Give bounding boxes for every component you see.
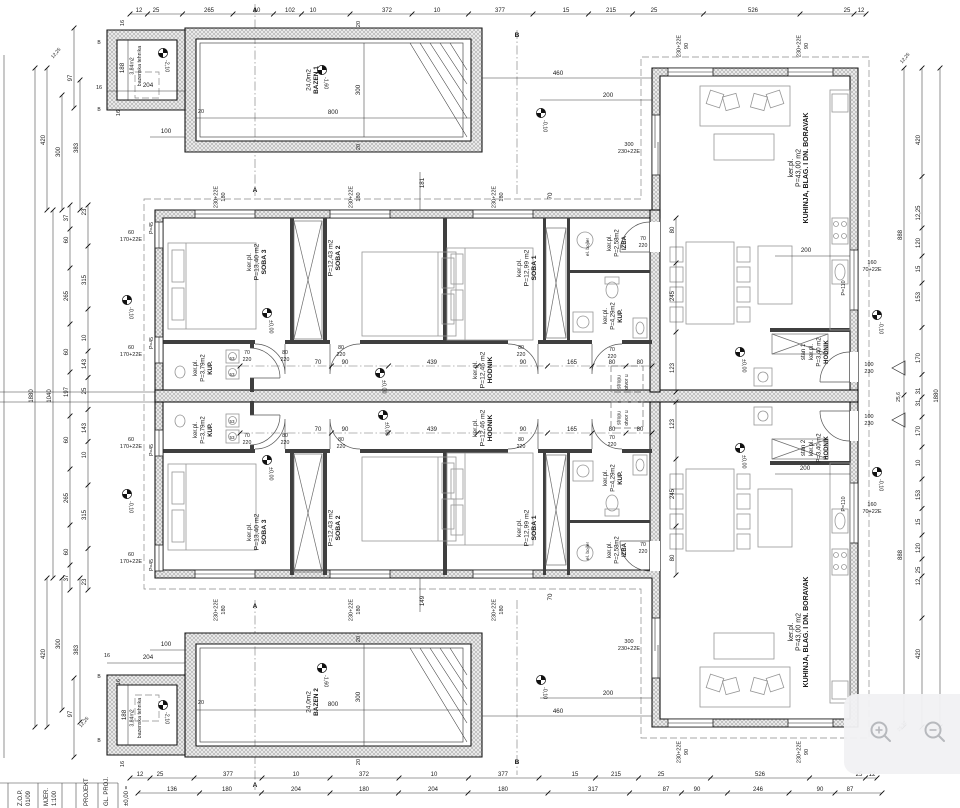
window-spec: 180230+22E [348, 186, 362, 209]
door_labels-label: 70220 [608, 347, 617, 360]
dim-value: 888 [898, 549, 904, 560]
pool_dims-label: 16 [120, 20, 126, 26]
window-spec: 180230+22E [491, 186, 505, 209]
dim-value: 143 [82, 358, 88, 369]
room-soba3-stan2: SOBA 3P=13,40 m2ker.pl. [246, 513, 268, 550]
dim-value: 215 [611, 772, 622, 778]
door_labels-label: 70220 [243, 433, 252, 446]
dim-value: 90 [520, 360, 527, 366]
dim-value: 204 [428, 787, 439, 793]
dim-value: 315 [82, 509, 88, 520]
dim-value: 10 [916, 459, 922, 466]
section-mark: A [253, 603, 258, 610]
room-living-stan1: KUHINJA, BLAG. I DN. BORAVAKP=43,00 m2ke… [788, 113, 810, 224]
dim-value: 170 [916, 425, 922, 436]
elevation-value: ±0,00 [268, 467, 274, 480]
pool-1 [185, 28, 482, 152]
dim-value: 1040 [47, 389, 53, 403]
terrace_dims-label: 181 [419, 177, 426, 188]
terrace_dims-label: 460 [553, 708, 564, 715]
elevation-value: -0,10 [542, 687, 548, 699]
title-cell: GL. PROJ. [104, 777, 110, 806]
elevation-value: -0,10 [542, 120, 548, 132]
bed [362, 252, 456, 336]
dim-value: 31 [916, 399, 922, 406]
el-bojler: el. bojler [585, 238, 591, 257]
door_labels-label: 70220 [639, 236, 648, 249]
window-spec: 16070+22E [862, 260, 881, 273]
dim-value: 87 [847, 787, 854, 793]
room-hodnik-stan2: HODNIKP=12,46 m2ker.pl. [472, 409, 494, 446]
title-cell: PROJEKT [84, 778, 90, 806]
terrace_dims-label: 200 [603, 92, 614, 99]
elevation-value: -1,60 [323, 675, 329, 687]
pool-bazen2: BAZEN 224,0m2 [305, 688, 320, 716]
pool_dims-label: 16 [120, 761, 126, 767]
elevation-value: -2,10 [164, 60, 170, 72]
dim-value: 12 [137, 772, 144, 778]
room-kup2-stan1: KUP.P=3,79m2ker.pl. [193, 354, 214, 382]
zoom-out-button[interactable] [919, 717, 953, 751]
elevation-marker: -0,10 [122, 489, 133, 513]
section-mark: B [515, 759, 520, 766]
door_labels-label: 80220 [281, 350, 290, 363]
dim-value: 420 [41, 134, 47, 145]
dim-value: 37 [64, 574, 70, 581]
misc-label: 12,25 [50, 47, 63, 60]
dim-value: 97 [68, 710, 74, 717]
room-kup-stan1: KUP.P=4,29m2ker.pl. [603, 302, 624, 330]
dim-300-bottom: 300 [56, 576, 65, 713]
room-izba-stan2: IZBAP=2,58m2ker.pl. [607, 536, 628, 564]
door_labels-label: 80220 [517, 437, 526, 450]
pool_dims-label: 20 [356, 759, 362, 765]
room-soba3-stan1: SOBA 3P=13,40 m2ker.pl. [246, 243, 268, 280]
title-cell: ±0,00 = [124, 785, 130, 806]
dim-value: 165 [567, 427, 578, 433]
terrace_dims-label: 70 [547, 593, 554, 600]
room-izba-stan1: IZBAP=2,58m2ker.pl. [607, 229, 628, 257]
dim-value: 180 [359, 787, 370, 793]
elevation-value: -2,10 [164, 712, 170, 724]
dim-value: 10 [431, 772, 438, 778]
otvor-u-stropu: otvor ustropu [616, 374, 630, 390]
pool-tech1: bazenska tehnika3,84m2 [129, 46, 143, 86]
parapet: P=45 [149, 337, 155, 349]
title-cell: 1:100 [52, 790, 58, 806]
elevation-value: ±0,00 [741, 359, 747, 372]
dim-value: 80 [670, 554, 676, 561]
dim-value: 60 [64, 348, 70, 355]
title-cell: Z.O.P. [18, 789, 24, 806]
dim-value: 120 [916, 237, 922, 248]
pool_dims-label: 800 [328, 701, 339, 708]
dim-chain-right-a: 42012,2512015153170313117010153151202512… [916, 66, 925, 730]
dim-value: 246 [753, 787, 764, 793]
dim-value: 377 [223, 772, 234, 778]
pool_dims-label: 16 [116, 110, 122, 116]
dim-value: 526 [755, 772, 766, 778]
terrace_dims-label: 200 [800, 465, 811, 472]
elevation-marker: ±0,00 [262, 308, 273, 333]
dim-value: 377 [498, 772, 509, 778]
dim-value: 12,25 [916, 205, 922, 221]
parapet: P=45 [149, 559, 155, 571]
dim-97-bottom: 97 [68, 676, 77, 760]
misc-label: 53 [229, 356, 235, 361]
misc-label: 53 [229, 435, 235, 440]
dim-97-top: 97 [68, 26, 77, 111]
section-mark: A [253, 782, 258, 789]
terrace_dims-label: 200 [801, 247, 812, 254]
dim-value: 143 [82, 422, 88, 433]
terrace_dims-label: 149 [419, 595, 426, 606]
title-cell: MJER. [44, 788, 50, 806]
dim-value: 31 [916, 387, 922, 394]
dim-chain-left-1040: 1040 [47, 208, 56, 581]
window-spec: 60170+22E [120, 552, 143, 565]
door-spec: 100230 [864, 362, 873, 375]
pool-bazen1: BAZEN 124,0m2 [305, 66, 320, 94]
dim-value: 25 [651, 8, 658, 14]
dim-value: 60 [64, 436, 70, 443]
dim-value: 420 [41, 648, 47, 659]
room-kup2-stan2: KUP.P=3,79m2ker.pl. [193, 416, 214, 444]
dim-value: 10 [82, 451, 88, 458]
window-spec: 300230+22E [618, 639, 641, 652]
pool_dims-label: 100 [161, 641, 172, 648]
pool_dims-label: 300 [355, 84, 362, 95]
dim-value: 300 [56, 146, 62, 157]
dim-value: 153 [916, 489, 922, 500]
dim-value: 120 [916, 542, 922, 553]
dim-420-top: 420 [41, 66, 50, 213]
pool_dims-label: 300 [355, 691, 362, 702]
sofa-group [700, 633, 790, 707]
elevation-marker: -0,10 [872, 467, 883, 491]
pool_dims-label: 204 [143, 654, 154, 661]
section-mark: B [97, 674, 101, 680]
dining-set [670, 469, 792, 551]
dim-value: 80 [637, 427, 644, 433]
dim-value: 420 [916, 648, 922, 659]
elevation-marker: -0,10 [536, 675, 547, 699]
dim-value: 245 [670, 290, 676, 301]
kitchen-counter [830, 90, 850, 330]
terrace_dims-label: 460 [553, 70, 564, 77]
dim-value: 888 [898, 229, 904, 240]
window-spec: 180230+22E [491, 599, 505, 622]
elevation-marker: ±0,00 [378, 410, 389, 435]
section-mark: B [97, 40, 101, 46]
pool_dims-label: 20 [198, 109, 204, 115]
window-spec: 90230+22E [676, 35, 690, 58]
pool_dims-label: 188 [119, 62, 126, 73]
party-wall [155, 390, 858, 402]
dim-value: 123 [670, 362, 676, 373]
dim-value: 37 [64, 214, 70, 221]
dim-value: 10 [82, 334, 88, 341]
parapet: P=45 [149, 222, 155, 234]
dim-value: 123 [670, 418, 676, 429]
elevation-marker: ±0,00 [262, 455, 273, 480]
section-mark: B [97, 738, 101, 744]
dim-value: 136 [167, 787, 178, 793]
dim-value: 25 [157, 772, 164, 778]
dim-value: 80 [670, 226, 676, 233]
pool_dims-label: 16 [96, 85, 102, 91]
dim-value: 25 [82, 387, 88, 394]
dim-chain-left-b: 376026560197602656037 [64, 203, 73, 593]
room-soba1-stan1: SOBA 1P=12,99 m2ker.pl. [516, 249, 538, 286]
dim-value: 25 [916, 566, 922, 573]
dim-value: 90 [342, 427, 349, 433]
terrace_dims-label: P=110 [841, 280, 847, 295]
window-spec: 180230+22E [348, 599, 362, 622]
dim-value: 245 [670, 488, 676, 499]
window-spec: 90230+22E [796, 35, 810, 58]
elevation-marker: -2,10 [158, 700, 169, 724]
dim-383-bottom: 383 [74, 576, 83, 725]
misc-label: 12,25 [899, 52, 912, 65]
dim-chain-bottom-2: 13618020418020418031787902469087 [136, 787, 885, 796]
pool-2 [185, 633, 482, 757]
viewer-zoom-panel [844, 694, 960, 774]
zoom-out-icon [923, 720, 949, 746]
pool_dims-label: 100 [161, 128, 172, 135]
window-spec: 60170+22E [120, 345, 143, 358]
floor-plan-page: 1225265101021037210377152152552625121225… [0, 0, 960, 808]
dim-value: 10 [293, 772, 300, 778]
dim-value: 15 [916, 518, 922, 525]
zoom-in-button[interactable] [865, 717, 899, 751]
pool_dims-label: 20 [356, 636, 362, 642]
terrace_dims-label: P=110 [841, 496, 847, 511]
pool-tech-room-2 [107, 675, 185, 755]
dim-chain-left-a: 2331510143251431031523 [82, 203, 91, 593]
dim-value: 377 [495, 8, 506, 14]
dim-value: 317 [588, 787, 599, 793]
dim-value: 15 [563, 8, 570, 14]
window-spec: 90230+22E [796, 741, 810, 764]
dim-value: 439 [427, 427, 438, 433]
dim-383-top: 383 [74, 78, 83, 213]
dim-value: 102 [285, 8, 296, 14]
door_labels-label: 70220 [608, 435, 617, 448]
dim-value: 526 [748, 8, 759, 14]
door_labels-label: 80220 [337, 345, 346, 358]
pool_dims-label: 16 [104, 653, 110, 659]
dim-value: 170 [916, 352, 922, 363]
dim-value: 90 [520, 427, 527, 433]
elevation-value: ±0,00 [381, 380, 387, 393]
elevation-value: ±0,00 [741, 455, 747, 468]
misc-label: 53 [229, 419, 235, 424]
sofa-group [700, 86, 790, 160]
bed [168, 464, 256, 550]
dim-value: 87 [663, 787, 670, 793]
window-spec: 60170+22E [120, 230, 143, 243]
dim-420-bottom: 420 [41, 576, 50, 730]
misc-label: 53 [229, 372, 235, 377]
pool-tech2: bazenska tehnika3,84m2 [129, 698, 143, 738]
bed [168, 243, 256, 329]
dim-value: 90 [817, 787, 824, 793]
dim-value: 80 [637, 360, 644, 366]
dim-value: 12 [916, 578, 922, 585]
dim-value: 439 [427, 360, 438, 366]
elevation-marker: ±0,00 [735, 443, 746, 468]
dim-value: 372 [359, 772, 370, 778]
section-mark: B [97, 107, 101, 113]
pool_dims-label: 204 [143, 82, 154, 89]
elevation-value: ±0,00 [268, 320, 274, 333]
section-mark: B [515, 32, 520, 39]
elevation-marker: -0,10 [122, 295, 133, 319]
window-spec: 180230+22E [213, 599, 227, 622]
dim-300-top: 300 [56, 93, 65, 213]
door-spec: 100230 [864, 414, 873, 427]
terrace_dims-label: 200 [603, 690, 614, 697]
dim-chain-col-stan1: 80245123 [670, 216, 679, 395]
dim-value: 10 [434, 8, 441, 14]
dim-value: 15 [916, 265, 922, 272]
dim-value: 60 [64, 236, 70, 243]
dim-value: 90 [342, 360, 349, 366]
zoom-in-icon [869, 720, 895, 746]
dim-value: 300 [56, 638, 62, 649]
dim-value: 23 [82, 208, 88, 215]
dim-value: 383 [74, 142, 80, 153]
dim-value: 265 [204, 8, 215, 14]
dim-value: 80 [609, 427, 616, 433]
dim-value: 204 [291, 787, 302, 793]
dim-chain-bottom-1: 1225377103721037715215255262512 [128, 772, 880, 781]
elevation-marker: -0,10 [872, 310, 883, 334]
room-soba2-stan2: SOBA 2P=12,43 m2 [327, 509, 342, 546]
dim-value: 420 [916, 134, 922, 145]
door_labels-label: 80220 [337, 437, 346, 450]
dim-value: 215 [606, 8, 617, 14]
dim-value: 383 [74, 644, 80, 655]
dim-chain-top: 122526510102103721037715215255262512 [128, 8, 869, 17]
elevation-value: -0,10 [878, 322, 884, 334]
floor-plan-drawing: 1225265101021037210377152152552625121225… [0, 0, 960, 808]
dim-value: 25 [844, 8, 851, 14]
elevation-marker: -1,60 [317, 663, 328, 687]
room-kup-stan2: KUP.P=4,29m2ker.pl. [603, 464, 624, 492]
dim-value: 15 [572, 772, 579, 778]
window-spec: 60170+22E [120, 437, 143, 450]
dim-value: 70 [315, 427, 322, 433]
dim-value: 180 [498, 787, 509, 793]
kitchen-counter [830, 463, 850, 703]
dim-value: 315 [82, 274, 88, 285]
pool_dims-label: 800 [328, 109, 339, 116]
dim-value: 265 [64, 492, 70, 503]
dim-value: 180 [222, 787, 233, 793]
elevation-marker: -2,10 [158, 48, 169, 72]
el-bojler: el. bojler [585, 542, 591, 561]
dim-chain-col-stan2: 12324580 [670, 400, 679, 578]
window-spec: 16070+22E [862, 502, 881, 515]
pool_dims-label: 20 [356, 144, 362, 150]
dim-chain-left-1880: 1880 [29, 66, 38, 730]
window-spec: 90230+22E [676, 741, 690, 764]
window-spec: 180230+22E [213, 186, 227, 209]
terrace_dims-label: 70 [547, 192, 554, 199]
dim-value: 12 [136, 8, 143, 14]
elevation-value: -0,10 [878, 479, 884, 491]
dim-value: 165 [567, 360, 578, 366]
pool_dims-label: 20 [198, 700, 204, 706]
elevation-value: -0,10 [128, 307, 134, 319]
elevation-marker: -0,10 [536, 108, 547, 132]
elevation-value: -0,10 [128, 501, 134, 513]
dim-value: 70 [315, 360, 322, 366]
door_labels-label: 80220 [281, 433, 290, 446]
elevation-marker: ±0,00 [735, 347, 746, 372]
dim-value: 90 [694, 787, 701, 793]
dining-set [670, 242, 792, 324]
dim-value: 23 [82, 578, 88, 585]
elevation-value: -1,60 [323, 77, 329, 89]
room-entry-stan2: HODNIKP=3,40 m2ker.pl.stan 2 [801, 433, 830, 463]
door_labels-label: 80220 [517, 345, 526, 358]
title-cell: 01/09 [26, 790, 32, 806]
terrace_dims-label: 25,6 [896, 392, 902, 402]
dim-value: 80 [609, 360, 616, 366]
bed [362, 457, 456, 541]
dim-value: 153 [916, 291, 922, 302]
room-hodnik-stan1: HODNIKP=12,46 m2ker.pl. [472, 351, 494, 388]
window-spec: 300230+22E [618, 142, 641, 155]
dim-value: 60 [64, 548, 70, 555]
parapet: P=45 [149, 444, 155, 456]
elevation-value: ±0,00 [384, 422, 390, 435]
dim-value: 12 [858, 8, 865, 14]
dim-value: 1880 [29, 389, 35, 403]
dim-value: 97 [68, 74, 74, 81]
dim-value: 25 [153, 8, 160, 14]
dim-value: 372 [382, 8, 393, 14]
dim-value: 25 [658, 772, 665, 778]
otvor-u-stropu: otvor ustropu [616, 410, 630, 426]
door_labels-label: 70220 [243, 350, 252, 363]
dim-value: 197 [64, 386, 70, 397]
pool_dims-label: 188 [121, 709, 128, 720]
room-living-stan2: KUHINJA, BLAG. I DN. BORAVAKP=43,00 m2ke… [788, 577, 810, 688]
room-soba2-stan1: SOBA 2P=12,43 m2 [327, 239, 342, 276]
pool_dims-label: 16 [116, 679, 122, 685]
dim-value: 265 [64, 290, 70, 301]
room-soba1-stan2: SOBA 1P=12,99 m2ker.pl. [516, 509, 538, 546]
section-mark: A [253, 7, 258, 14]
dim-value: 1880 [934, 389, 940, 403]
pool_dims-label: 20 [356, 21, 362, 27]
section-mark: A [253, 187, 258, 194]
dim-chain-right-1880: 1880 [934, 66, 943, 730]
dim-value: 10 [310, 8, 317, 14]
door_labels-label: 70220 [639, 542, 648, 555]
room-entry-stan1: HODNIKP=3,40 m2ker.pl.stan 1 [801, 337, 830, 367]
